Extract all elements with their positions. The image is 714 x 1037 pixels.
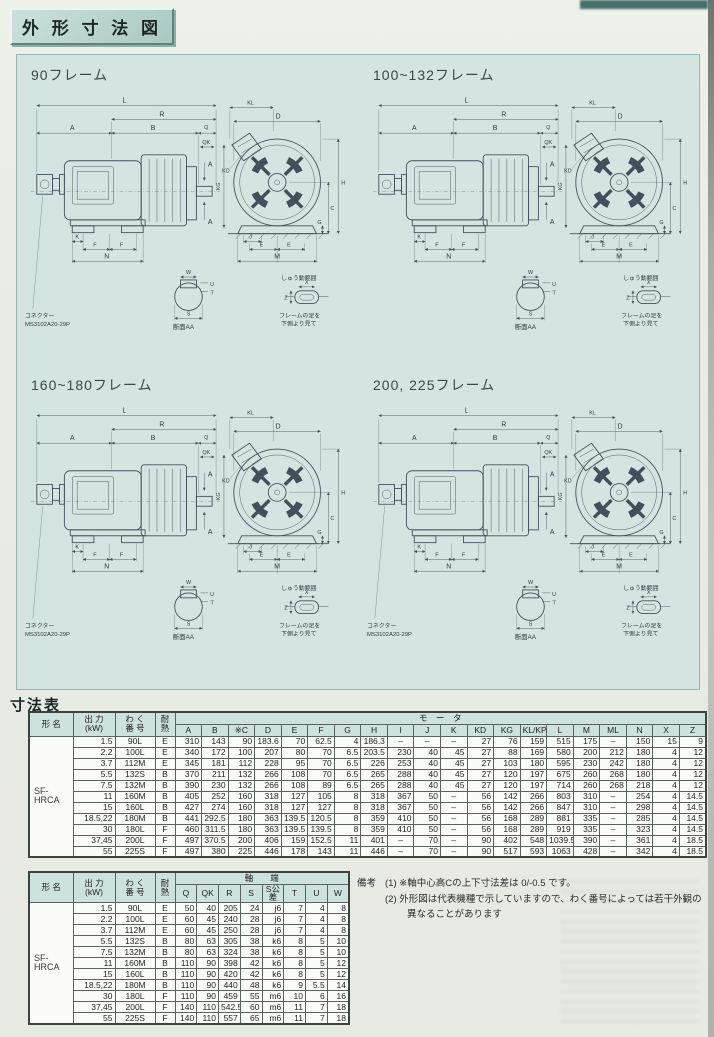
dim-label-KG: KG: [558, 182, 564, 190]
value-cell: 80: [175, 947, 197, 958]
foot-view-note-1: フレームの足を: [621, 622, 662, 629]
value-cell: 38: [240, 947, 262, 958]
value-cell: 8: [284, 936, 306, 947]
value-cell: 311.5: [202, 824, 229, 835]
value-cell: 285: [626, 813, 653, 824]
dimension-table: 形 名出 力 (kW)わ く 番 号耐 熱モ ー タAB※CDEFGHIJKKD…: [28, 711, 707, 858]
column-header: A: [175, 724, 202, 736]
value-cell: 240: [219, 914, 241, 925]
dim-label-G: G: [659, 220, 663, 226]
side-view: A A L R A B Q QK K: [367, 408, 562, 639]
value-cell: 4: [653, 758, 680, 769]
column-header: S公差: [262, 884, 284, 903]
heat-cell: B: [155, 980, 175, 991]
dim-label-KD: KD: [222, 479, 230, 485]
value-cell: –: [600, 846, 627, 857]
value-cell: 405: [175, 791, 202, 802]
column-header: M: [573, 724, 600, 736]
slide-note: しゅう動範囲: [281, 274, 317, 282]
value-cell: 370: [175, 769, 202, 780]
value-cell: 18.5: [679, 835, 706, 846]
value-cell: 4: [653, 813, 680, 824]
slide-note: しゅう動範囲: [623, 274, 659, 282]
column-header: 出 力 (kW): [73, 712, 115, 736]
table-row: 55225SF49738022544617814311446–70–905175…: [29, 846, 706, 857]
heat-cell: B: [155, 958, 175, 969]
value-cell: 335: [573, 813, 600, 824]
value-cell: 10: [284, 991, 306, 1002]
frame-cell: 160L: [115, 969, 155, 980]
value-cell: 230: [387, 747, 414, 758]
value-cell: 595: [547, 758, 574, 769]
dim-label-Q: Q: [546, 435, 550, 441]
dim-label-D: D: [618, 423, 623, 430]
value-cell: 310: [573, 802, 600, 813]
value-cell: 90: [467, 846, 494, 857]
foot-slot-detail: しゅう動範囲 X Z フレームの足を 下側より見て: [621, 274, 670, 327]
value-cell: 127: [281, 802, 308, 813]
value-cell: 7: [284, 925, 306, 936]
dim-label-E: E: [260, 242, 264, 248]
value-cell: j6: [262, 925, 284, 936]
value-cell: 266: [520, 802, 547, 813]
value-cell: 847: [547, 802, 574, 813]
column-header: KD: [467, 724, 494, 736]
value-cell: 593: [520, 846, 547, 857]
dim-label-C: C: [672, 206, 676, 212]
output-cell: 3.7: [73, 925, 115, 936]
dim-label-KG: KG: [558, 492, 564, 500]
value-cell: 45: [440, 747, 467, 758]
value-cell: 342: [626, 846, 653, 857]
dim-label-J: J: [249, 235, 252, 241]
dim-label-K: K: [417, 545, 421, 551]
value-cell: 402: [494, 835, 521, 846]
value-cell: k6: [262, 958, 284, 969]
value-cell: 152.5: [308, 835, 335, 846]
dim-label-J: J: [591, 545, 594, 551]
value-cell: –: [600, 813, 627, 824]
value-cell: 110: [175, 958, 197, 969]
dim-label-T: T: [552, 291, 556, 297]
value-cell: 12: [679, 769, 706, 780]
dim-label-F: F: [93, 242, 97, 248]
dim-label-K: K: [75, 235, 79, 241]
value-cell: 140: [175, 1013, 197, 1024]
table-row: 5.5132SB806330538k68510: [29, 936, 349, 947]
table-row: 11160MB1109039842k68512: [29, 958, 349, 969]
column-header: L: [547, 724, 574, 736]
value-cell: 11: [284, 1002, 306, 1013]
value-cell: 76: [494, 736, 521, 747]
value-cell: 4: [653, 835, 680, 846]
dim-label-QK: QK: [544, 140, 552, 146]
keyway-section-detail: W U T S 断面AA: [173, 270, 215, 331]
value-cell: 89: [308, 780, 335, 791]
value-cell: 27: [467, 780, 494, 791]
value-cell: 40: [197, 903, 219, 914]
column-header: わ く 番 号: [115, 872, 155, 903]
dim-label-L: L: [465, 98, 469, 105]
value-cell: 180: [626, 747, 653, 758]
front-view: KL D KD KG: [558, 101, 687, 264]
column-header: G: [334, 724, 361, 736]
dim-label-R: R: [159, 421, 164, 428]
output-cell: 15: [73, 802, 115, 813]
value-cell: 40: [414, 747, 441, 758]
value-cell: 218: [626, 780, 653, 791]
foot-slot-detail: しゅう動範囲 X Z フレームの足を 下側より見て: [279, 274, 328, 327]
value-cell: 406: [255, 835, 282, 846]
remark-item: (2) 外形図は代表機種で示していますので、わく番号によっては若干外観の異なるこ…: [385, 892, 707, 923]
value-cell: 8: [327, 925, 349, 936]
table-row: 37,45200LF497370.5200406159152.511401–70…: [29, 835, 706, 846]
foot-view-note-1: フレームの足を: [621, 312, 662, 319]
output-cell: 30: [73, 824, 115, 835]
value-cell: 45: [440, 758, 467, 769]
value-cell: 8: [334, 813, 361, 824]
dim-label-C: C: [330, 516, 334, 522]
column-header: E: [281, 724, 308, 736]
value-cell: 197: [520, 780, 547, 791]
table-row: 7.5132MB390230132266108896.5265288404527…: [29, 780, 706, 791]
heat-cell: B: [155, 780, 175, 791]
foot-view-note-1: フレームの足を: [279, 312, 320, 319]
value-cell: –: [440, 791, 467, 802]
value-cell: 390: [175, 780, 202, 791]
motor-dimension-drawing: A A L R A B Q QK K: [365, 89, 695, 332]
value-cell: –: [600, 824, 627, 835]
value-cell: 288: [387, 769, 414, 780]
value-cell: 65: [240, 1013, 262, 1024]
value-cell: 28: [240, 925, 262, 936]
value-cell: 70: [308, 747, 335, 758]
dim-label-Q: Q: [546, 125, 550, 131]
value-cell: 260: [573, 780, 600, 791]
column-header: S: [240, 884, 262, 903]
foot-slot-detail: しゅう動範囲 X Z フレームの足を 下側より見て: [279, 584, 328, 637]
value-cell: 180: [520, 758, 547, 769]
value-cell: 15: [653, 736, 680, 747]
dim-label-QK: QK: [202, 450, 210, 456]
value-cell: 27: [467, 769, 494, 780]
value-cell: 27: [467, 736, 494, 747]
value-cell: 12: [327, 969, 349, 980]
value-cell: 186.3: [361, 736, 388, 747]
value-cell: 200: [573, 747, 600, 758]
output-cell: 30: [73, 991, 115, 1002]
value-cell: 90: [197, 969, 219, 980]
table-row: 11160MB405252160318127105831836750–56142…: [29, 791, 706, 802]
heat-cell: E: [155, 736, 175, 747]
value-cell: 5.5: [306, 980, 328, 991]
dim-label-N: N: [446, 253, 451, 260]
dim-label-H: H: [683, 180, 687, 186]
frame-cell: 100L: [115, 747, 155, 758]
motor-drawing-host: A A L R A B Q QK K: [365, 399, 695, 642]
value-cell: 390: [573, 835, 600, 846]
dim-label-N: N: [446, 563, 451, 570]
value-cell: 14.5: [679, 791, 706, 802]
dim-label-H: H: [683, 490, 687, 496]
value-cell: 8: [284, 958, 306, 969]
column-header: H: [361, 724, 388, 736]
value-cell: 40: [414, 780, 441, 791]
value-cell: 120.5: [308, 813, 335, 824]
front-view: KL D KD KG: [558, 411, 687, 574]
column-header: ML: [600, 724, 627, 736]
value-cell: 12: [679, 780, 706, 791]
dim-label-R: R: [501, 421, 506, 428]
value-cell: 70: [281, 736, 308, 747]
dim-label-K: K: [417, 235, 421, 241]
value-cell: 254: [626, 791, 653, 802]
page-title: 外 形 寸 法 図: [10, 8, 174, 45]
value-cell: 250: [219, 925, 241, 936]
value-cell: 175: [573, 736, 600, 747]
dim-label-E: E: [260, 552, 264, 558]
output-cell: 5.5: [73, 936, 115, 947]
value-cell: 8: [334, 791, 361, 802]
value-cell: 266: [255, 780, 282, 791]
section-title: 200, 225フレーム: [373, 375, 697, 395]
value-cell: 361: [626, 835, 653, 846]
column-header: 耐 熱: [155, 712, 175, 736]
value-cell: –: [600, 736, 627, 747]
motor-dimension-table-container: 形 名出 力 (kW)わ く 番 号耐 熱モ ー タAB※CDEFGHIJKKD…: [28, 711, 707, 858]
value-cell: 80: [175, 936, 197, 947]
dim-label-A: A: [412, 435, 417, 442]
table-row: 15160LB427274160318127127831836750–56142…: [29, 802, 706, 813]
dim-label-W: W: [186, 580, 192, 586]
value-cell: 427: [175, 802, 202, 813]
dim-label-a-section: A: [208, 529, 213, 536]
side-view: A A L R A B Q QK K: [25, 408, 220, 639]
value-cell: 50: [175, 903, 197, 914]
value-cell: 70: [308, 758, 335, 769]
heat-cell: F: [155, 846, 175, 857]
value-cell: 401: [361, 835, 388, 846]
value-cell: –: [440, 824, 467, 835]
table-row: SF- HRCA1.590LE31014390183.67062.54186.3…: [29, 736, 706, 747]
dim-label-F: F: [462, 242, 466, 248]
value-cell: 226: [361, 758, 388, 769]
dim-label-A: A: [412, 125, 417, 132]
value-cell: 363: [255, 824, 282, 835]
heat-cell: B: [155, 769, 175, 780]
value-cell: 881: [547, 813, 574, 824]
value-cell: m6: [262, 991, 284, 1002]
dim-label-G: G: [317, 530, 321, 536]
table-row: 55225SF14011055765m611718: [29, 1013, 349, 1024]
value-cell: 345: [175, 758, 202, 769]
foot-view-note-2: 下側より見て: [623, 629, 658, 637]
value-cell: 5: [306, 958, 328, 969]
table-row: 2.2100LE604524028j6748: [29, 914, 349, 925]
value-cell: 8: [327, 903, 349, 914]
value-cell: 5: [306, 947, 328, 958]
value-cell: 4: [306, 903, 328, 914]
dimension-table: 形 名出 力 (kW)わ く 番 号耐 熱軸 端QQKRSS公差TUWSF- H…: [28, 871, 350, 1025]
frame-cell: 132S: [115, 936, 155, 947]
output-cell: 11: [73, 791, 115, 802]
dim-label-X: X: [647, 280, 651, 286]
value-cell: 242: [600, 758, 627, 769]
value-cell: 14.5: [679, 813, 706, 824]
value-cell: 497: [175, 835, 202, 846]
heat-cell: F: [155, 991, 175, 1002]
dim-label-S: S: [529, 621, 533, 627]
value-cell: 90: [467, 835, 494, 846]
value-cell: 205: [219, 903, 241, 914]
value-cell: 203.5: [361, 747, 388, 758]
dim-label-M: M: [616, 563, 622, 570]
value-cell: 27: [467, 747, 494, 758]
table-row: 3.7112ME604525028j6748: [29, 925, 349, 936]
dim-label-S: S: [529, 311, 533, 317]
table-row: 18.5,22180MB441292.5180363139.5120.58359…: [29, 813, 706, 824]
dim-label-X: X: [305, 280, 309, 286]
dim-label-L: L: [123, 408, 127, 415]
dim-label-S: S: [187, 621, 191, 627]
value-cell: 542.5: [219, 1002, 241, 1013]
value-cell: 159: [281, 835, 308, 846]
group-header: 軸 端: [175, 872, 349, 884]
value-cell: 446: [255, 846, 282, 857]
value-cell: m6: [262, 1013, 284, 1024]
value-cell: 410: [387, 813, 414, 824]
value-cell: 230: [202, 780, 229, 791]
value-cell: 27: [467, 758, 494, 769]
value-cell: 197: [520, 769, 547, 780]
value-cell: 60: [240, 1002, 262, 1013]
output-cell: 18.5,22: [73, 980, 115, 991]
value-cell: 6: [306, 991, 328, 1002]
value-cell: 70: [308, 769, 335, 780]
value-cell: 5: [306, 936, 328, 947]
value-cell: 1039.5: [547, 835, 574, 846]
section-aa-label: 断面AA: [173, 322, 195, 331]
dim-label-J: J: [591, 235, 594, 241]
dim-label-B: B: [493, 125, 498, 132]
frame-section-200-225: 200, 225フレーム A: [363, 367, 697, 673]
value-cell: 110: [175, 991, 197, 1002]
value-cell: 105: [308, 791, 335, 802]
value-cell: 11: [334, 835, 361, 846]
frame-cell: 160M: [115, 958, 155, 969]
output-cell: 15: [73, 969, 115, 980]
dim-label-a-section: A: [550, 529, 555, 536]
value-cell: 180: [626, 758, 653, 769]
output-cell: 1.5: [73, 903, 115, 914]
frame-section-100-132: 100~132フレーム A: [363, 57, 697, 363]
value-cell: 38: [240, 936, 262, 947]
dim-label-A: A: [70, 125, 75, 132]
value-cell: –: [440, 835, 467, 846]
dim-label-U: U: [552, 592, 556, 598]
value-cell: 180: [228, 813, 255, 824]
frame-cell: 160M: [115, 791, 155, 802]
value-cell: 18: [327, 1002, 349, 1013]
connector-model: MS3102A20-29P: [25, 632, 70, 638]
value-cell: 318: [361, 791, 388, 802]
value-cell: 1063: [547, 846, 574, 857]
dim-label-T: T: [552, 601, 556, 607]
value-cell: 143: [202, 736, 229, 747]
value-cell: 168: [494, 824, 521, 835]
value-cell: j6: [262, 914, 284, 925]
frame-cell: 112M: [115, 925, 155, 936]
value-cell: 517: [494, 846, 521, 857]
frame-cell: 160L: [115, 802, 155, 813]
heat-cell: F: [155, 1002, 175, 1013]
value-cell: 181: [202, 758, 229, 769]
dim-label-B: B: [151, 125, 156, 132]
dim-label-W: W: [186, 270, 192, 276]
heat-cell: E: [155, 914, 175, 925]
keyway-section-detail: W U T S 断面AA: [173, 580, 215, 641]
value-cell: 4: [306, 914, 328, 925]
value-cell: 110: [197, 1002, 219, 1013]
value-cell: 10: [327, 947, 349, 958]
section-aa-label: 断面AA: [173, 632, 195, 641]
foot-view-note-2: 下側より見て: [281, 319, 316, 327]
value-cell: 803: [547, 791, 574, 802]
value-cell: 318: [361, 802, 388, 813]
column-header: わ く 番 号: [115, 712, 155, 736]
value-cell: 460: [175, 824, 202, 835]
value-cell: 90: [197, 980, 219, 991]
heat-cell: F: [155, 1013, 175, 1024]
value-cell: k6: [262, 980, 284, 991]
value-cell: 340: [175, 747, 202, 758]
dim-label-M: M: [274, 253, 280, 260]
value-cell: 108: [281, 769, 308, 780]
value-cell: 4: [653, 824, 680, 835]
value-cell: 103: [494, 758, 521, 769]
section-aa-label: 断面AA: [515, 632, 537, 641]
value-cell: 139.5: [308, 824, 335, 835]
value-cell: k6: [262, 936, 284, 947]
value-cell: 55: [240, 991, 262, 1002]
remarks-label: 備考: [357, 876, 385, 923]
value-cell: k6: [262, 947, 284, 958]
column-header: I: [387, 724, 414, 736]
output-cell: 1.5: [73, 736, 115, 747]
dim-label-a-section: A: [550, 472, 555, 479]
value-cell: 12: [679, 747, 706, 758]
dim-label-N: N: [104, 253, 109, 260]
dim-label-A: A: [70, 435, 75, 442]
value-cell: 132: [228, 780, 255, 791]
value-cell: –: [600, 802, 627, 813]
frame-section-160-180: 160~180フレーム A: [21, 367, 355, 673]
value-cell: 50: [414, 813, 441, 824]
dim-label-D: D: [276, 113, 281, 120]
page-right-edge: [708, 0, 714, 1037]
remarks-items: (1) ※軸中心高Cの上下寸法差は 0/-0.5 です。 (2) 外形図は代表機…: [385, 876, 707, 923]
value-cell: 142: [494, 802, 521, 813]
dim-label-E: E: [287, 242, 291, 248]
value-cell: 45: [197, 925, 219, 936]
value-cell: 211: [202, 769, 229, 780]
heat-cell: B: [155, 947, 175, 958]
value-cell: 160: [228, 791, 255, 802]
dim-label-KL: KL: [247, 101, 254, 107]
motor-drawing-host: A A L R A B Q QK K: [23, 89, 353, 332]
value-cell: 62.5: [308, 736, 335, 747]
value-cell: 4: [653, 769, 680, 780]
